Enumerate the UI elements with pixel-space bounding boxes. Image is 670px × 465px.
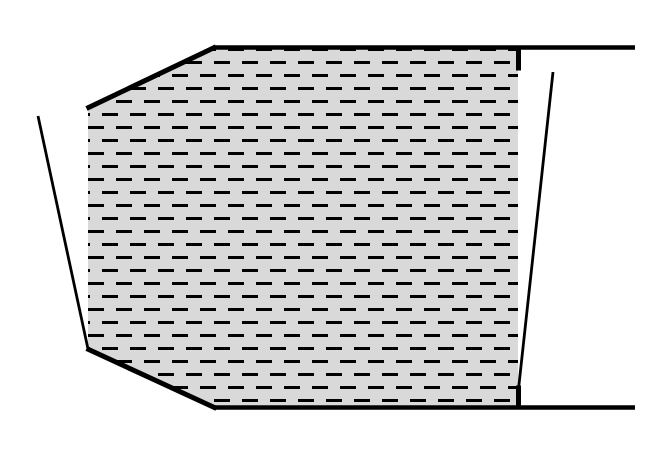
horizontal-dash-hatch (88, 47, 518, 410)
figure-canvas (0, 0, 670, 465)
hatched-polygon-diagram (0, 0, 670, 465)
